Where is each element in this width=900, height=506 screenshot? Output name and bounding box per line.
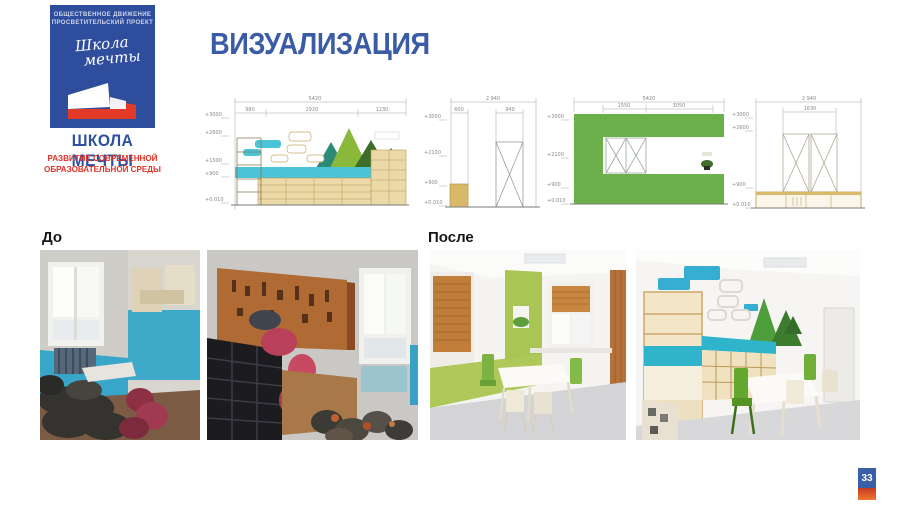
level-label: +1500 — [205, 158, 222, 164]
logo-building-icon — [64, 77, 142, 125]
after-label: После — [428, 229, 474, 246]
window-left — [430, 272, 474, 368]
dim-total: 5420 — [309, 96, 322, 102]
level-label: +900 — [732, 182, 746, 188]
radiator — [361, 366, 407, 392]
ceiling-light — [525, 254, 565, 263]
dim-total: 2 940 — [802, 96, 816, 102]
double-window — [606, 138, 646, 173]
level-label: +0.010 — [732, 202, 751, 208]
photo-before-2 — [207, 250, 418, 440]
ceiling-light — [764, 258, 806, 267]
dim-seg: 600 — [454, 107, 464, 113]
dim-seg: 1630 — [804, 106, 817, 112]
photo-after-2 — [636, 250, 860, 440]
cabinet-door — [347, 282, 355, 350]
window — [359, 268, 411, 364]
level-label: +2600 — [205, 130, 222, 136]
page-number-badge: 33 — [858, 468, 876, 500]
photo-before-1 — [40, 250, 200, 440]
level-label: +3000 — [205, 112, 222, 118]
level-label: +2100 — [547, 152, 564, 158]
door-opening — [496, 142, 523, 207]
elevation-drawing-green-wall: 5420 1550 3050 +3000 +2100 +900 +0.010 — [546, 92, 730, 218]
tall-window — [783, 134, 837, 192]
level-label: +2600 — [732, 125, 749, 131]
display-stand — [642, 400, 678, 440]
blue-wall-right — [128, 310, 200, 380]
dim-seg: 1230 — [376, 107, 389, 113]
elevation-drawing-shelving-mural: 5420 980 2920 1230 +3000 +2600 +1500 +90… — [203, 92, 415, 218]
level-label: +3000 — [424, 114, 441, 120]
mural-water-band — [235, 167, 371, 178]
logo-script-text: Школа мечты — [49, 32, 156, 71]
level-label: +3000 — [547, 114, 564, 120]
cubby-unit-lower — [258, 178, 371, 205]
level-label: +2100 — [424, 150, 441, 156]
page-number: 33 — [858, 468, 876, 488]
elevation-drawing-window-cabinet: 2 940 1630 +3000 +2600 +900 +0.010 — [731, 92, 870, 218]
logo-tagline: РАЗВИТИЕ СОВРЕМЕННОЙ ОБРАЗОВАТЕЛЬНОЙ СРЕ… — [43, 153, 162, 175]
photo-after-1 — [430, 250, 626, 440]
mural-clouds — [243, 140, 281, 156]
before-label: До — [42, 229, 62, 246]
level-label: +0.010 — [547, 198, 566, 204]
badge-red-stripe — [858, 488, 876, 500]
wall-counter — [530, 348, 612, 353]
dim-seg: 980 — [245, 107, 255, 113]
page-title: ВИЗУАЛИЗАЦИЯ — [210, 26, 430, 62]
low-cabinet — [450, 184, 468, 207]
dim-seg: 2920 — [306, 107, 319, 113]
level-label: +900 — [424, 180, 438, 186]
window-right — [548, 282, 594, 348]
cubby-unit-right — [371, 150, 406, 205]
elevation-drawing-door: 2 940 600 940 +3000 +2100 +900 +0.010 — [423, 92, 545, 218]
dim-total: 2 940 — [486, 96, 500, 102]
level-label: +900 — [547, 182, 561, 188]
blue-panel — [410, 345, 418, 405]
level-label: +900 — [205, 171, 219, 177]
level-label: +0.010 — [205, 197, 224, 203]
dim-seg: 3050 — [673, 103, 686, 109]
dim-total: 5420 — [643, 96, 656, 102]
logo-org-text: ОБЩЕСТВЕННОЕ ДВИЖЕНИЕ ПРОСВЕТИТЕЛЬСКИЙ П… — [50, 11, 155, 27]
level-label: +0.010 — [424, 200, 443, 206]
dim-seg: 1550 — [618, 103, 631, 109]
drawing-note — [375, 132, 399, 139]
logo-school-of-dreams: ОБЩЕСТВЕННОЕ ДВИЖЕНИЕ ПРОСВЕТИТЕЛЬСКИЙ П… — [50, 5, 155, 128]
level-label: +3000 — [732, 112, 749, 118]
low-cabinet — [756, 192, 861, 208]
window — [48, 262, 104, 346]
dim-seg: 940 — [505, 107, 515, 113]
